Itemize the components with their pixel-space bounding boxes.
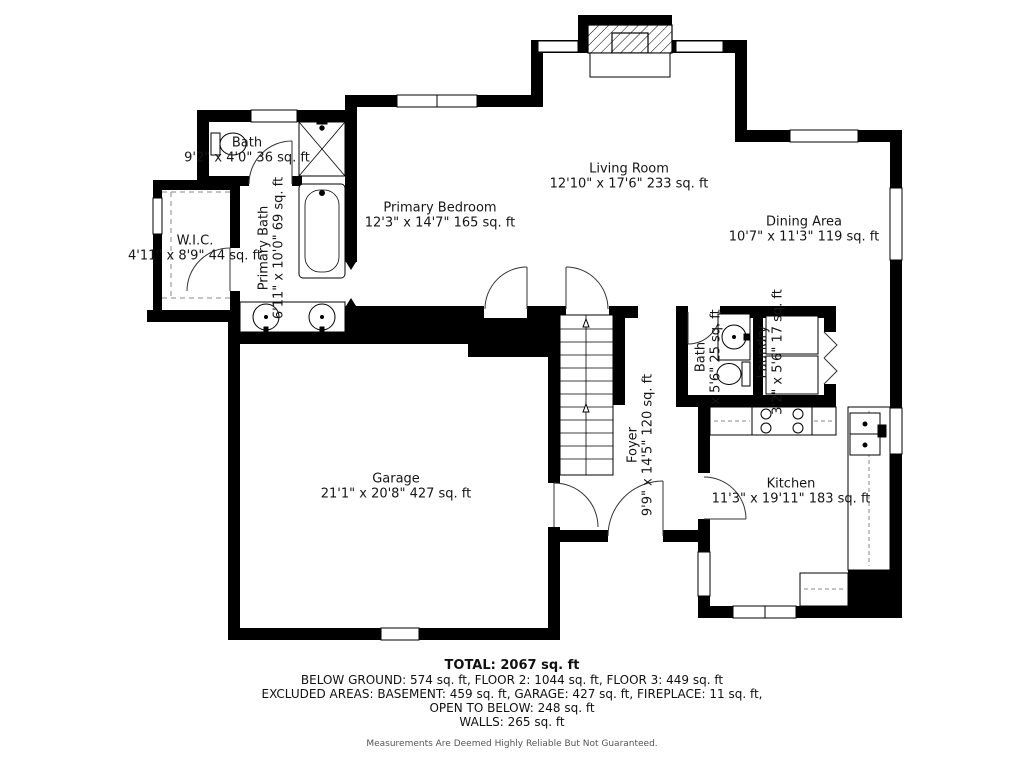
room-name: Kitchen: [712, 477, 871, 492]
window-kitchen-bottom: [733, 606, 796, 618]
room-name: Foyer: [626, 374, 641, 516]
room-dims: 10'7" x 11'3" 119 sq. ft: [729, 230, 880, 245]
room-dims: 3'2" x 5'6" 17 sq. ft: [771, 289, 786, 415]
window-dining-top: [790, 130, 858, 142]
staircase: [560, 315, 613, 475]
floor-plan-svg: [0, 0, 1024, 660]
room-label-primary-bath: Primary Bath 6'11" x 10'0" 69 sq. ft: [257, 177, 288, 319]
room-dims: 12'3" x 14'7" 165 sq. ft: [365, 216, 516, 231]
room-dims: 9'2" x 4'0" 36 sq. ft: [184, 151, 310, 166]
room-dims: 21'1" x 20'8" 427 sq. ft: [321, 487, 472, 502]
summary-floors: BELOW GROUND: 574 sq. ft, FLOOR 2: 1044 …: [0, 673, 1024, 687]
room-dims: 4'11" x 8'9" 44 sq. ft: [128, 249, 262, 264]
room-label-garage: Garage 21'1" x 20'8" 427 sq. ft: [321, 472, 472, 503]
summary-excluded: EXCLUDED AREAS: BASEMENT: 459 sq. ft, GA…: [0, 687, 1024, 701]
room-dims: 9'9" x 14'5" 120 sq. ft: [641, 374, 656, 516]
floor-plan-page: Bath 9'2" x 4'0" 36 sq. ft W.I.C. 4'11" …: [0, 0, 1024, 768]
summary-open-below: OPEN TO BELOW: 248 sq. ft: [0, 701, 1024, 715]
hearth: [590, 53, 670, 77]
window-bath-top: [251, 110, 297, 122]
window-wic-left: [153, 198, 162, 234]
room-label-laundry: Laundry 3'2" x 5'6" 17 sq. ft: [756, 289, 787, 415]
room-label-foyer: Foyer 9'9" x 14'5" 120 sq. ft: [626, 374, 657, 516]
room-name: W.I.C.: [128, 234, 262, 249]
room-name: Dining Area: [729, 215, 880, 230]
kitchen-counter-bottom: [800, 573, 848, 606]
room-label-wic: W.I.C. 4'11" x 8'9" 44 sq. ft: [128, 234, 262, 265]
window-garage-bottom: [381, 628, 419, 640]
window-kitchen-right: [890, 408, 902, 454]
room-name: Garage: [321, 472, 472, 487]
window-living-right: [676, 41, 723, 52]
window-living-left: [538, 41, 578, 52]
fireplace: [578, 15, 672, 77]
disclaimer: Measurements Are Deemed Highly Reliable …: [0, 739, 1024, 749]
window-dining-right: [890, 188, 902, 260]
room-label-bath-upper: Bath 9'2" x 4'0" 36 sq. ft: [184, 136, 310, 167]
room-dims: x 5'6" 25 sq. ft: [709, 309, 724, 404]
room-label-kitchen: Kitchen 11'3" x 19'11" 183 sq. ft: [712, 477, 871, 508]
room-label-dining-area: Dining Area 10'7" x 11'3" 119 sq. ft: [729, 215, 880, 246]
room-name: Laundry: [756, 289, 771, 415]
room-dims: 6'11" x 10'0" 69 sq. ft: [272, 177, 287, 319]
room-label-bath-small: Bath x 5'6" 25 sq. ft: [694, 309, 725, 404]
room-label-living-room: Living Room 12'10" x 17'6" 233 sq. ft: [550, 162, 709, 193]
window-kitchen-left: [698, 552, 710, 596]
room-label-primary-bedroom: Primary Bedroom 12'3" x 14'7" 165 sq. ft: [365, 201, 516, 232]
door-bedroom: [485, 267, 527, 309]
room-name: Bath: [694, 309, 709, 404]
door-garage-entry: [554, 483, 598, 527]
door-laundry-bifold: [824, 332, 837, 384]
summary-total: TOTAL: 2067 sq. ft: [0, 658, 1024, 673]
summary-walls: WALLS: 265 sq. ft: [0, 715, 1024, 729]
door-living: [566, 267, 608, 309]
bathtub: [299, 184, 345, 278]
opening-markers: [346, 262, 356, 306]
room-name: Primary Bedroom: [365, 201, 516, 216]
room-name: Primary Bath: [257, 177, 272, 319]
plan-summary: TOTAL: 2067 sq. ft BELOW GROUND: 574 sq.…: [0, 658, 1024, 749]
room-name: Bath: [184, 136, 310, 151]
window-bedroom-top: [397, 95, 477, 107]
room-name: Living Room: [550, 162, 709, 177]
room-dims: 11'3" x 19'11" 183 sq. ft: [712, 492, 871, 507]
room-dims: 12'10" x 17'6" 233 sq. ft: [550, 177, 709, 192]
